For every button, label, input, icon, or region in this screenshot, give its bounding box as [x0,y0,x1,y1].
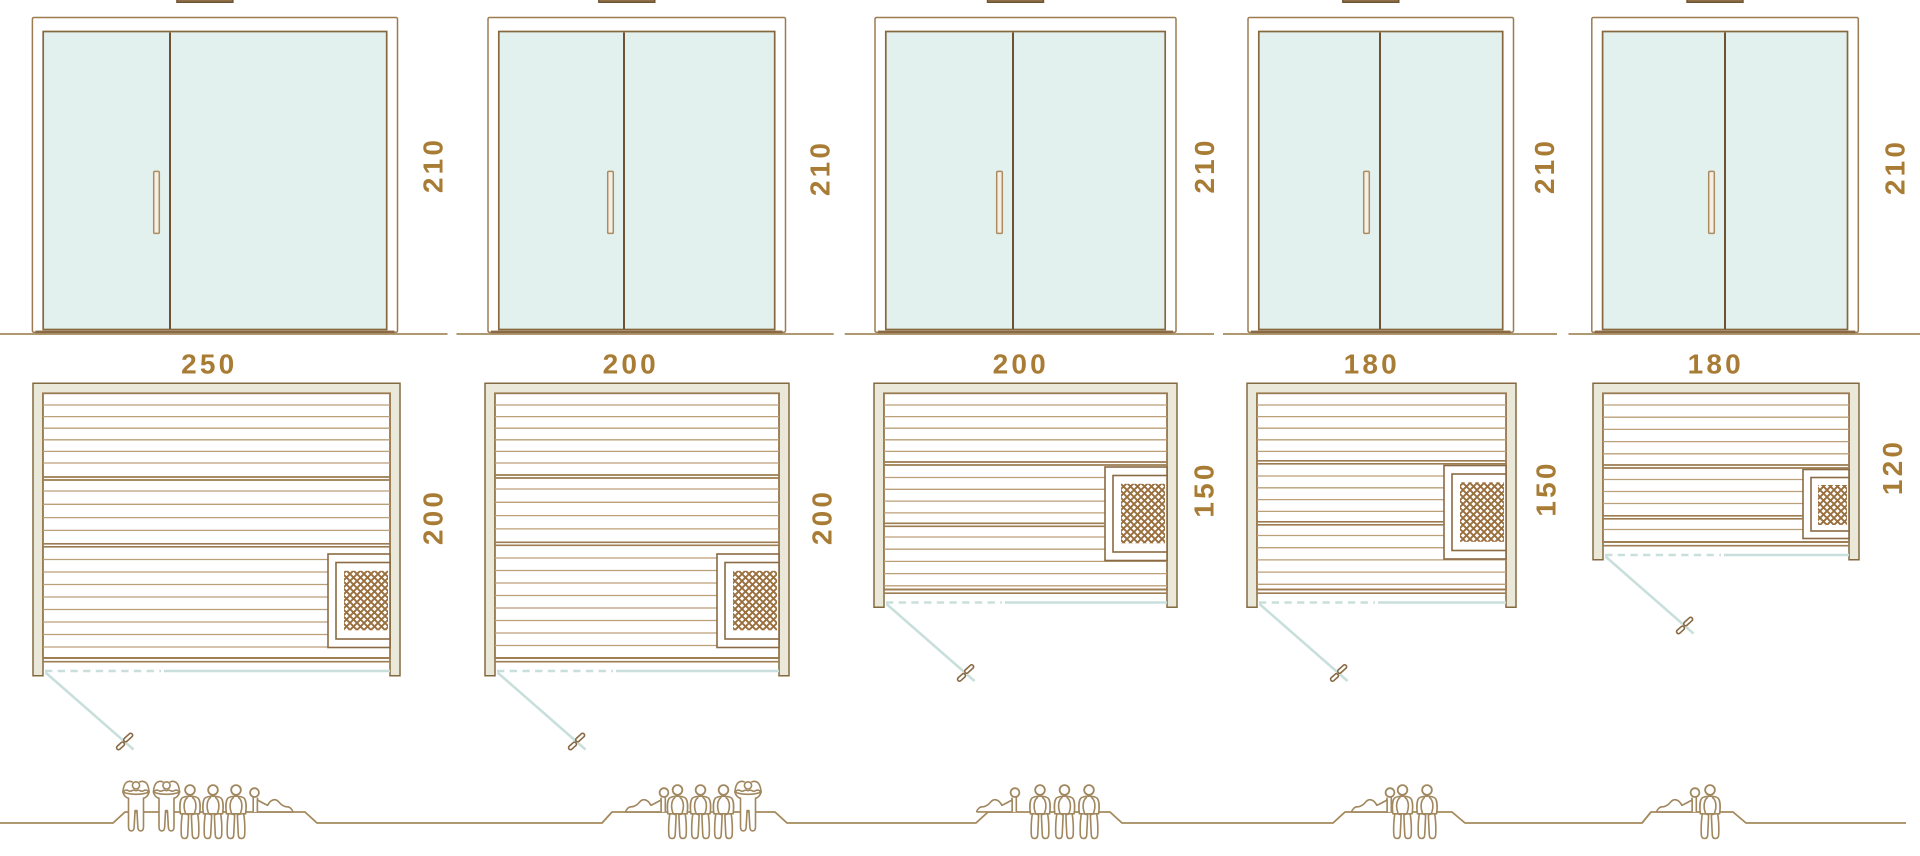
svg-text:210: 210 [418,137,449,193]
svg-text:200: 200 [993,349,1049,380]
svg-text:150: 150 [1530,460,1561,516]
svg-text:210: 210 [1529,138,1560,194]
svg-text:200: 200 [418,489,449,545]
svg-text:210: 210 [1189,137,1220,193]
svg-text:200: 200 [807,489,838,545]
svg-text:250: 250 [181,349,237,380]
svg-text:210: 210 [1880,139,1911,195]
svg-text:150: 150 [1189,461,1220,517]
svg-text:180: 180 [1688,349,1744,380]
svg-text:180: 180 [1344,349,1400,380]
svg-text:120: 120 [1877,439,1908,495]
svg-text:210: 210 [805,140,836,196]
svg-text:200: 200 [603,349,659,380]
